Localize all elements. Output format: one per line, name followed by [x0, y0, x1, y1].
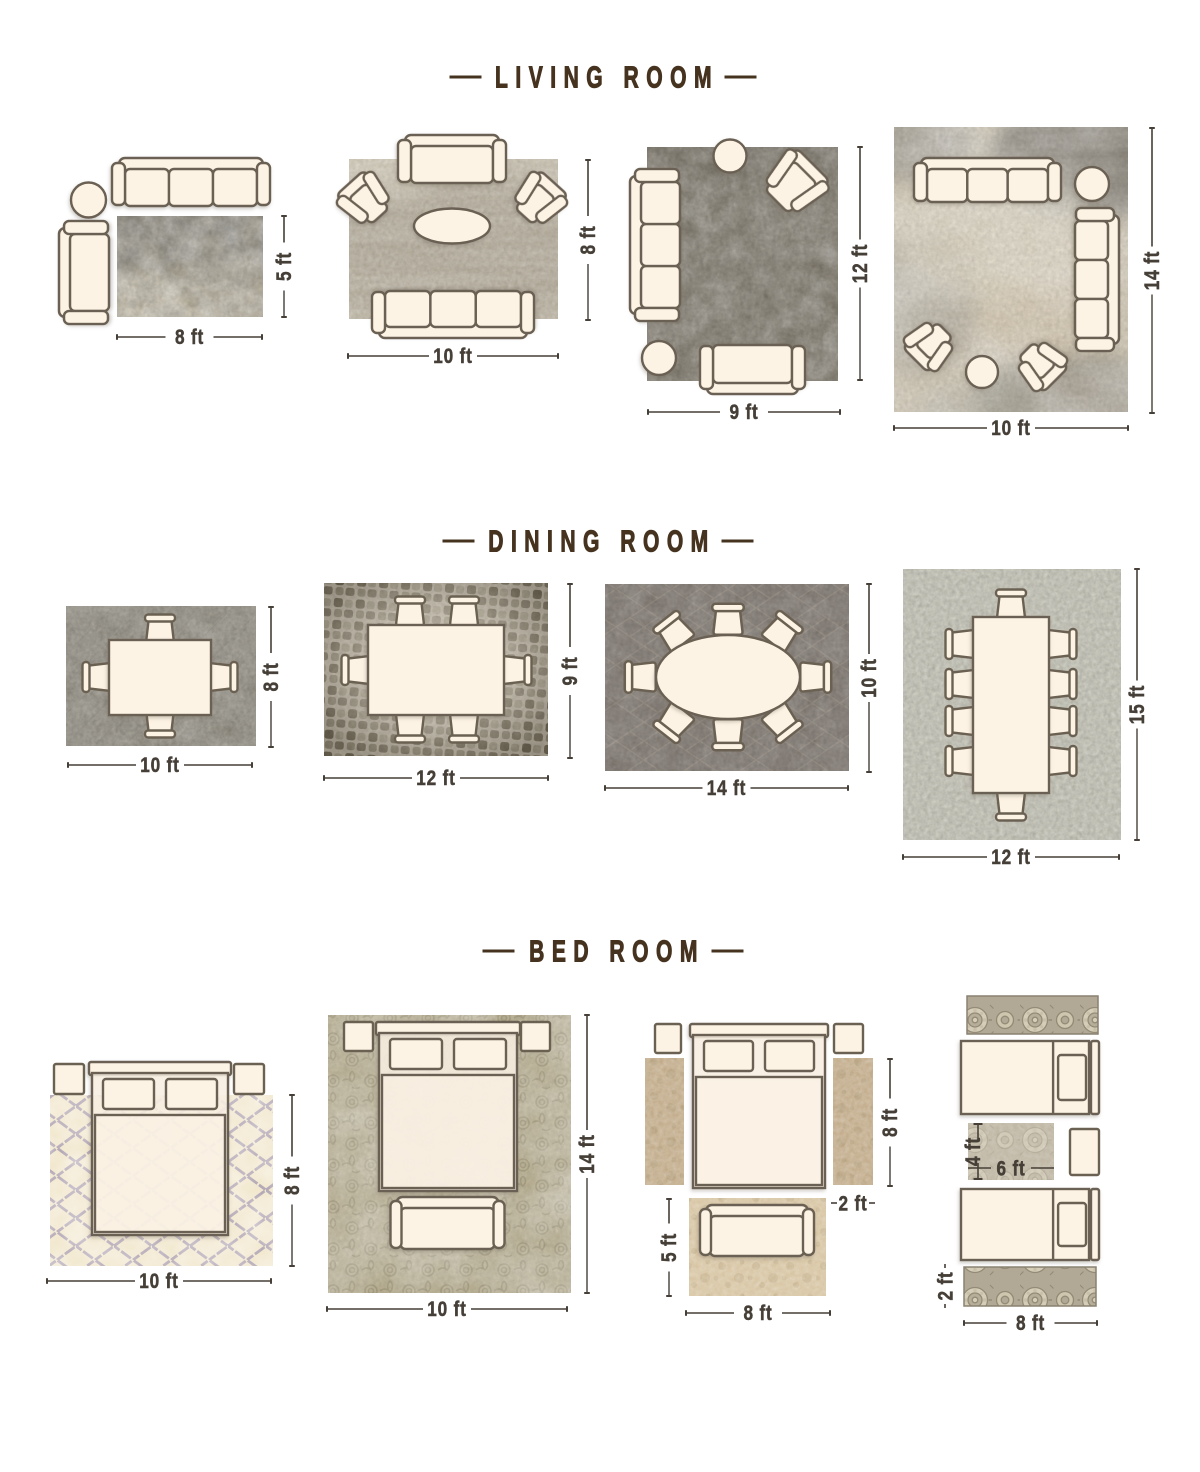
svg-text:8 ft: 8 ft — [578, 225, 601, 254]
svg-text:BED ROOM: BED ROOM — [529, 933, 705, 968]
svg-text:8 ft: 8 ft — [282, 1166, 305, 1195]
svg-text:10 ft: 10 ft — [991, 418, 1030, 441]
svg-text:8 ft: 8 ft — [880, 1108, 903, 1137]
svg-text:6 ft: 6 ft — [996, 1158, 1025, 1181]
svg-text:9 ft: 9 ft — [729, 402, 758, 425]
svg-text:12 ft: 12 ft — [850, 244, 873, 283]
svg-text:8 ft: 8 ft — [743, 1303, 772, 1326]
svg-text:14 ft: 14 ft — [1142, 251, 1165, 290]
svg-text:10 ft: 10 ft — [427, 1299, 466, 1322]
svg-text:10 ft: 10 ft — [859, 658, 882, 697]
svg-text:8 ft: 8 ft — [1016, 1313, 1045, 1336]
svg-text:12 ft: 12 ft — [416, 768, 455, 791]
svg-text:14 ft: 14 ft — [707, 778, 746, 801]
svg-text:12 ft: 12 ft — [991, 847, 1030, 870]
svg-text:DINING ROOM: DINING ROOM — [488, 523, 715, 558]
svg-text:2 ft: 2 ft — [935, 1271, 958, 1300]
svg-text:15 ft: 15 ft — [1127, 685, 1150, 724]
svg-text:2 ft: 2 ft — [838, 1193, 867, 1216]
svg-text:8 ft: 8 ft — [261, 662, 284, 691]
svg-text:8 ft: 8 ft — [175, 327, 204, 350]
svg-text:4 ft: 4 ft — [963, 1137, 986, 1166]
svg-text:LIVING ROOM: LIVING ROOM — [495, 59, 719, 94]
svg-text:9 ft: 9 ft — [560, 656, 583, 685]
svg-text:10 ft: 10 ft — [433, 346, 472, 369]
svg-text:14 ft: 14 ft — [577, 1134, 600, 1173]
svg-text:5 ft: 5 ft — [659, 1233, 682, 1262]
svg-text:10 ft: 10 ft — [139, 1271, 178, 1294]
svg-text:5 ft: 5 ft — [274, 252, 297, 281]
svg-text:10 ft: 10 ft — [140, 755, 179, 778]
